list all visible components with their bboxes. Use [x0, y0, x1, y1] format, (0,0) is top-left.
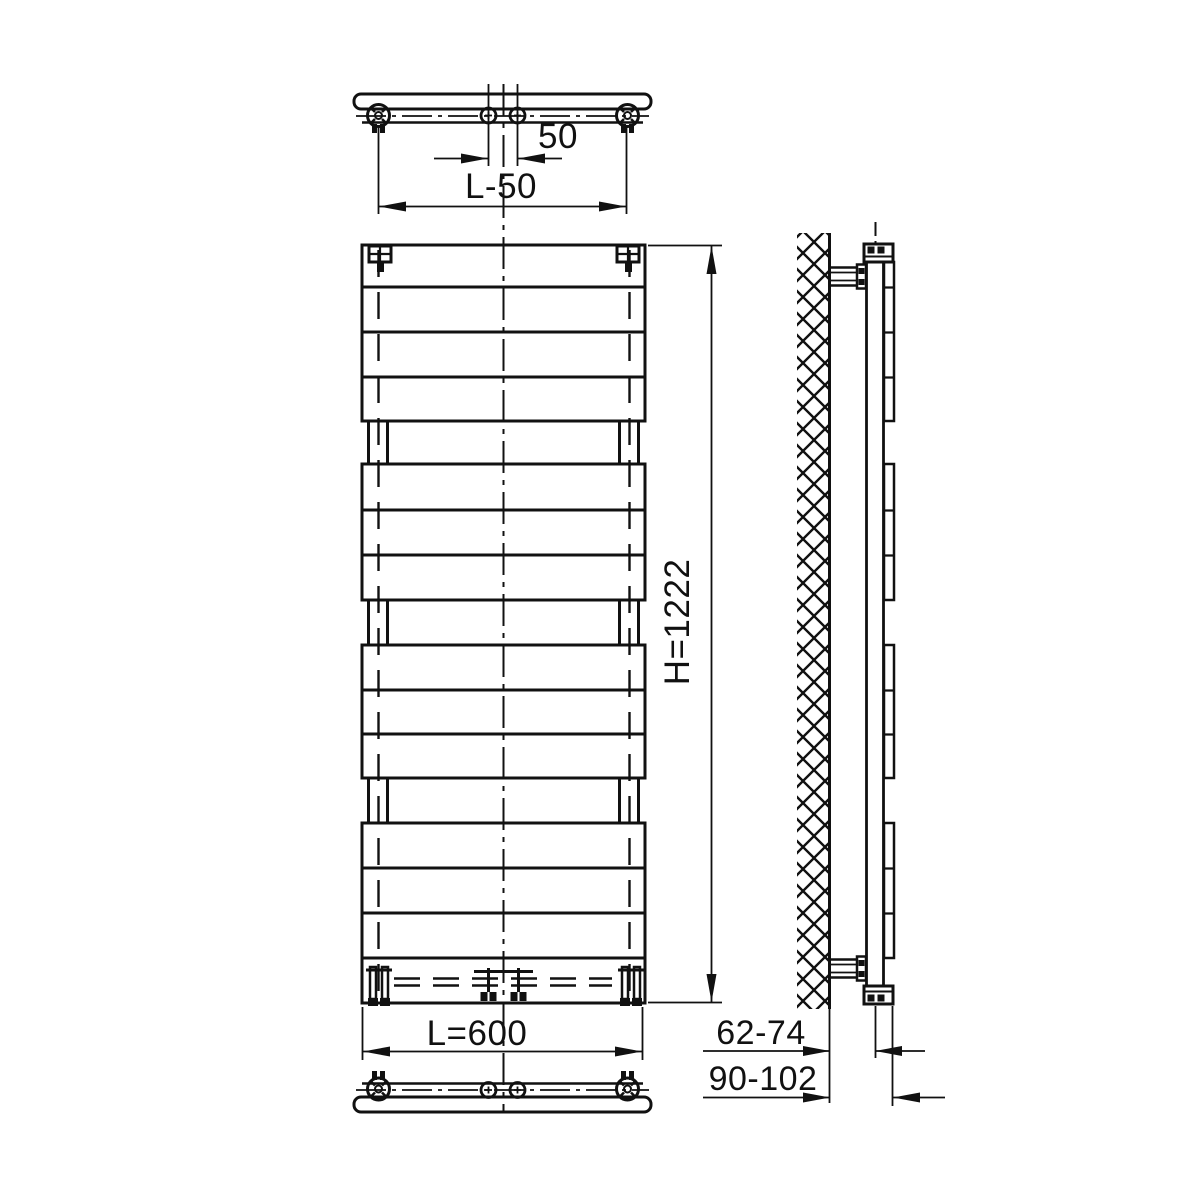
arm-outer-lines	[830, 268, 857, 286]
dim-label-port-spacing: 50	[538, 117, 578, 156]
clamp-block	[859, 960, 865, 966]
bracket-bar	[382, 967, 388, 999]
arm-inner-lines	[830, 965, 857, 973]
panel-edge-segment	[884, 823, 894, 958]
dimension-annotations: 50 L-50 H=1222 L=600 62-74 90-102	[363, 84, 946, 1106]
panel-edge-segment	[884, 645, 894, 778]
front-view	[362, 84, 645, 1112]
arm-inner-lines	[830, 273, 857, 281]
dim-label-width: L=600	[427, 1014, 528, 1053]
fitting-hub	[624, 1086, 631, 1093]
bracket-bar	[622, 967, 628, 999]
cap-block	[868, 247, 875, 254]
fitting-foot	[629, 124, 634, 133]
radiator-technical-drawing: 50 L-50 H=1222 L=600 62-74 90-102	[0, 0, 1200, 1200]
bracket-foot	[632, 998, 642, 1006]
valve-foot	[520, 992, 527, 1001]
bracket-foot	[368, 998, 378, 1006]
bracket-bar	[634, 967, 640, 999]
clamp-block	[859, 268, 865, 274]
bracket-foot	[620, 998, 630, 1006]
side-panel-strip	[884, 262, 894, 958]
side-top-cap	[864, 244, 893, 262]
side-collector-tube	[867, 262, 884, 986]
bracket-stem	[377, 262, 384, 272]
bracket-cross	[369, 246, 391, 262]
bracket-stem	[625, 262, 632, 272]
side-bottom-bracket-arm	[830, 957, 866, 981]
dim-label-height: H=1222	[658, 559, 697, 686]
cap-block	[878, 995, 885, 1002]
side-top-bracket-arm	[830, 265, 866, 289]
fitting-foot	[380, 124, 385, 133]
bracket-foot	[380, 998, 390, 1006]
arm-outer-lines	[830, 960, 857, 978]
panel-edge-segment	[884, 464, 894, 600]
bracket-cross	[617, 246, 639, 262]
cap-block	[878, 247, 885, 254]
cap-block	[868, 995, 875, 1002]
bottom-right-bracket	[618, 967, 644, 1006]
side-bottom-cap	[864, 986, 893, 1004]
drawing-canvas: 50 L-50 H=1222 L=600 62-74 90-102	[0, 0, 1200, 1200]
top-right-bracket	[617, 246, 639, 272]
side-view	[797, 222, 894, 1009]
fitting-hub	[375, 1086, 382, 1093]
valve-foot	[511, 992, 518, 1001]
clamp-block	[859, 971, 865, 977]
dim-label-wall-to-front: 90-102	[709, 1060, 818, 1098]
clamp-block	[859, 279, 865, 285]
valve-foot	[481, 992, 488, 1001]
wall-hatch	[797, 233, 830, 1009]
bracket-bar	[370, 967, 376, 999]
valve-foot	[490, 992, 497, 1001]
fitting-foot	[372, 124, 377, 133]
top-left-bracket	[369, 246, 391, 272]
panel-edge-segment	[884, 262, 894, 421]
fitting-foot	[621, 124, 626, 133]
dim-label-bracket-spacing: L-50	[465, 167, 537, 206]
dim-label-wall-to-back: 62-74	[716, 1014, 805, 1052]
